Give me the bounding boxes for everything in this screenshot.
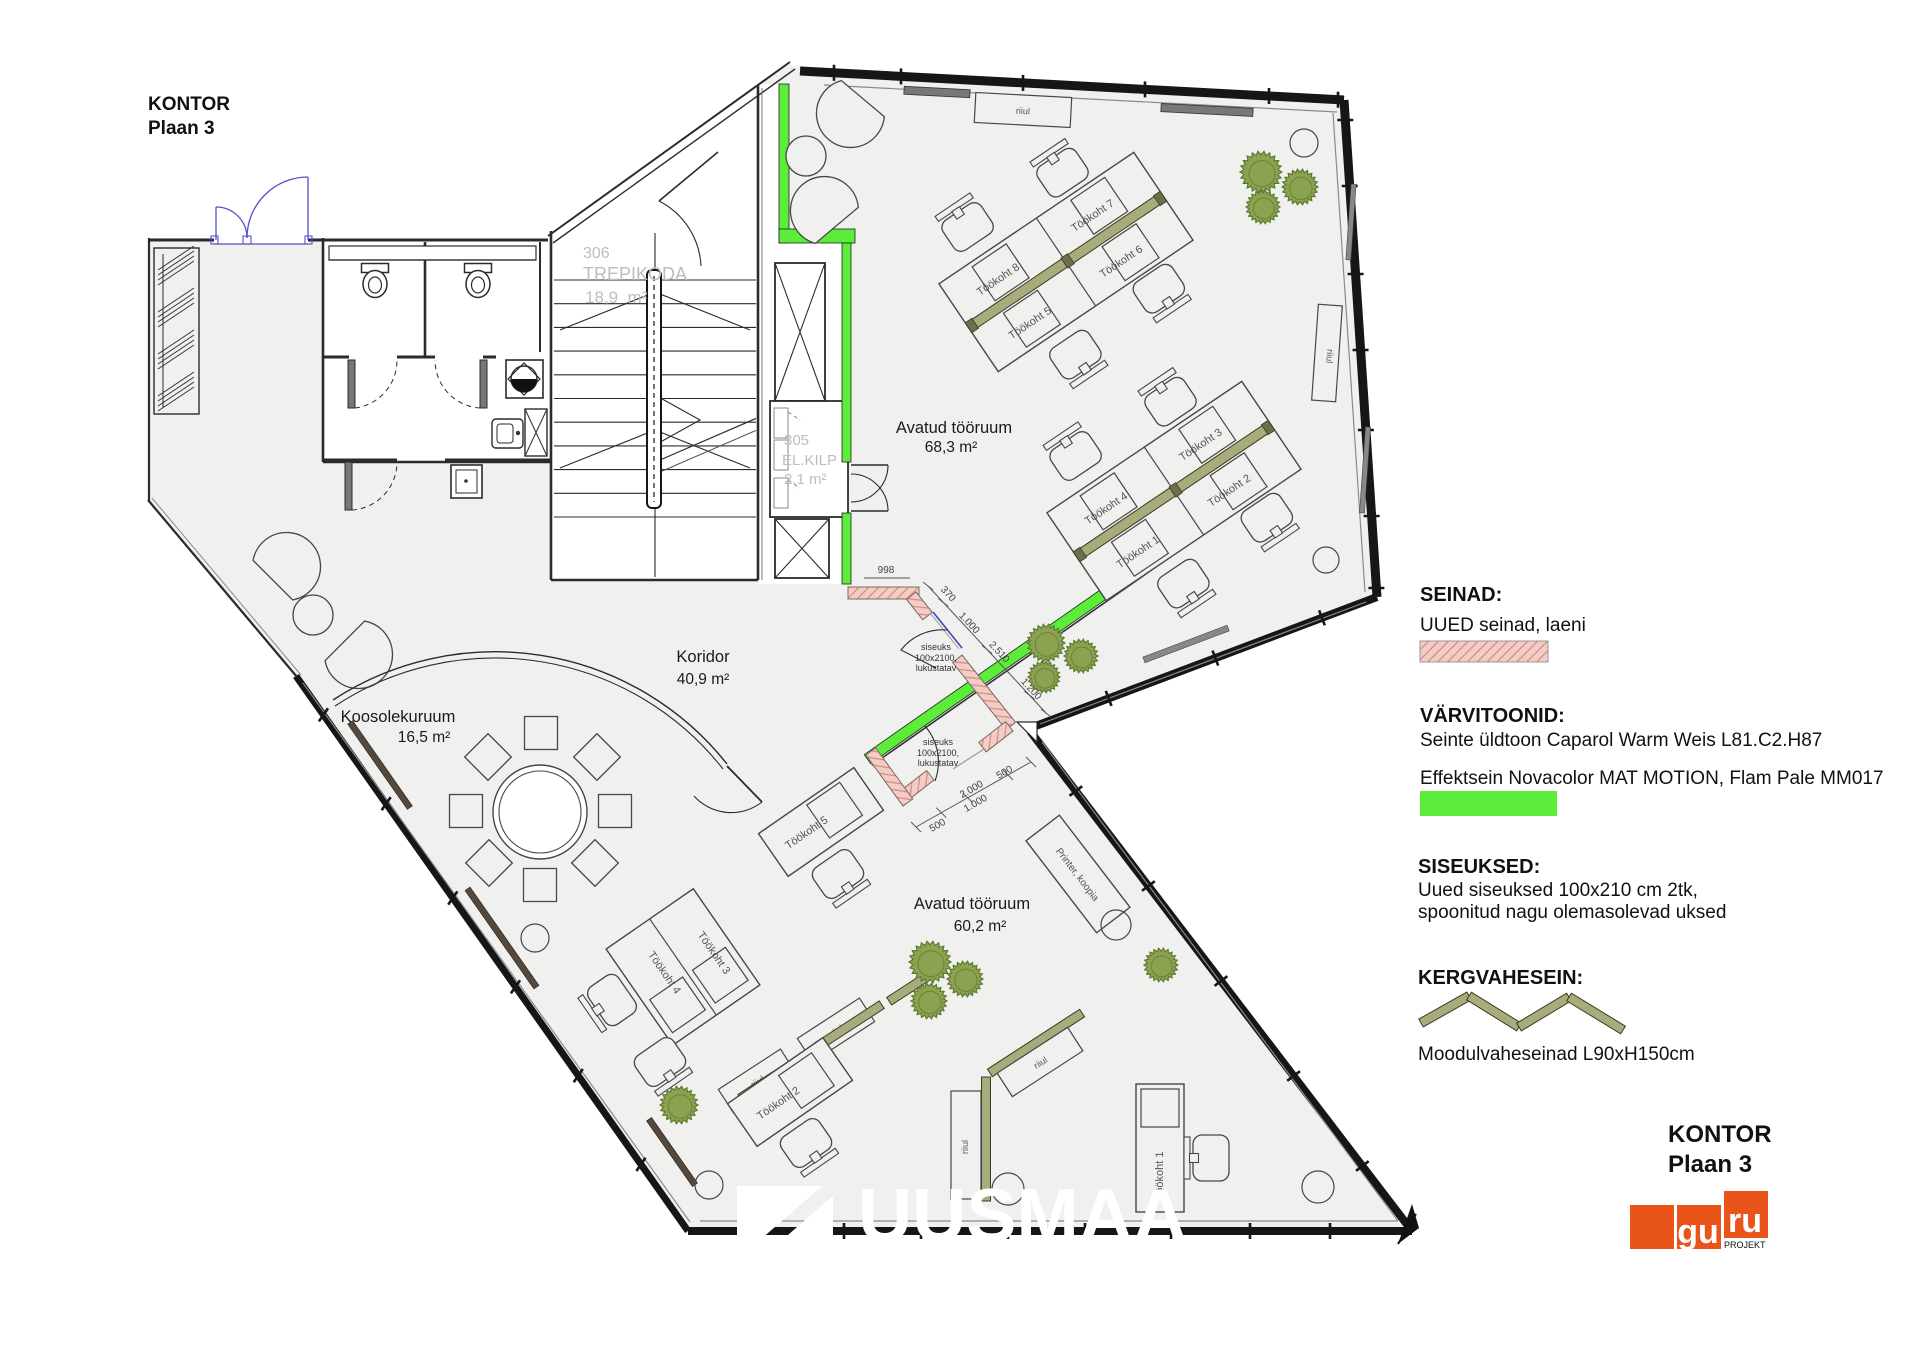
svg-text:KERGVAHESEIN:: KERGVAHESEIN:	[1418, 967, 1583, 989]
svg-text:KONTOR: KONTOR	[1668, 1121, 1772, 1148]
svg-text:Effektsein Novacolor MAT MOTIO: Effektsein Novacolor MAT MOTION, Flam Pa…	[1420, 768, 1884, 789]
svg-text:gu: gu	[1677, 1213, 1719, 1251]
svg-text:siseuks: siseuks	[921, 642, 952, 652]
svg-text:Seinte üldtoon Caparol Warm We: Seinte üldtoon Caparol Warm Weis L81.C2.…	[1420, 730, 1822, 751]
svg-text:306: 306	[583, 245, 610, 262]
svg-text:Moodulvaheseinad L90xH150cm: Moodulvaheseinad L90xH150cm	[1418, 1044, 1695, 1065]
svg-text:KONTOR: KONTOR	[148, 94, 230, 115]
svg-text:TREPIKODA: TREPIKODA	[583, 264, 687, 284]
svg-text:Avatud tööruum: Avatud tööruum	[896, 419, 1012, 437]
svg-text:Plaan 3: Plaan 3	[1668, 1151, 1752, 1178]
svg-text:16,5 m²: 16,5 m²	[398, 729, 451, 746]
svg-text:lukustatav: lukustatav	[918, 758, 959, 768]
svg-text:2,1 m²: 2,1 m²	[784, 471, 827, 488]
svg-text:spoonitud nagu olemasolevad uk: spoonitud nagu olemasolevad uksed	[1418, 902, 1726, 923]
svg-text:Avatud tööruum: Avatud tööruum	[914, 895, 1030, 913]
svg-text:18,9 m²: 18,9 m²	[585, 288, 648, 307]
svg-text:riiul: riiul	[960, 1140, 970, 1154]
svg-text:Uued siseuksed 100x210 cm 2tk,: Uued siseuksed 100x210 cm 2tk,	[1418, 880, 1698, 901]
svg-text:100x2100,: 100x2100,	[917, 748, 959, 758]
svg-text:Koridor: Koridor	[676, 648, 730, 666]
svg-text:40,9 m²: 40,9 m²	[677, 671, 730, 688]
svg-text:Koosolekuruum: Koosolekuruum	[341, 708, 456, 726]
svg-text:100x2100,: 100x2100,	[915, 653, 957, 663]
svg-text:lukustatav: lukustatav	[916, 663, 957, 673]
svg-text:SEINAD:: SEINAD:	[1420, 584, 1502, 606]
svg-text:998: 998	[878, 565, 895, 576]
svg-text:Plaan 3: Plaan 3	[148, 118, 215, 139]
svg-text:ru: ru	[1728, 1202, 1762, 1240]
svg-text:PROJEKT: PROJEKT	[1724, 1240, 1766, 1250]
svg-text:305: 305	[784, 432, 809, 449]
svg-text:UUED seinad, laeni: UUED seinad, laeni	[1420, 615, 1586, 636]
svg-text:riiul: riiul	[1324, 349, 1335, 364]
svg-text:riiul: riiul	[1016, 106, 1031, 117]
svg-text:VÄRVITOONID:: VÄRVITOONID:	[1420, 704, 1565, 727]
svg-text:60,2 m²: 60,2 m²	[954, 918, 1007, 935]
svg-text:UUSMAA: UUSMAA	[858, 1173, 1187, 1257]
svg-text:siseuks: siseuks	[923, 737, 954, 747]
svg-text:EL.KILP: EL.KILP	[782, 452, 837, 469]
svg-text:68,3 m²: 68,3 m²	[925, 439, 978, 456]
svg-text:SISEUKSED:: SISEUKSED:	[1418, 856, 1540, 878]
